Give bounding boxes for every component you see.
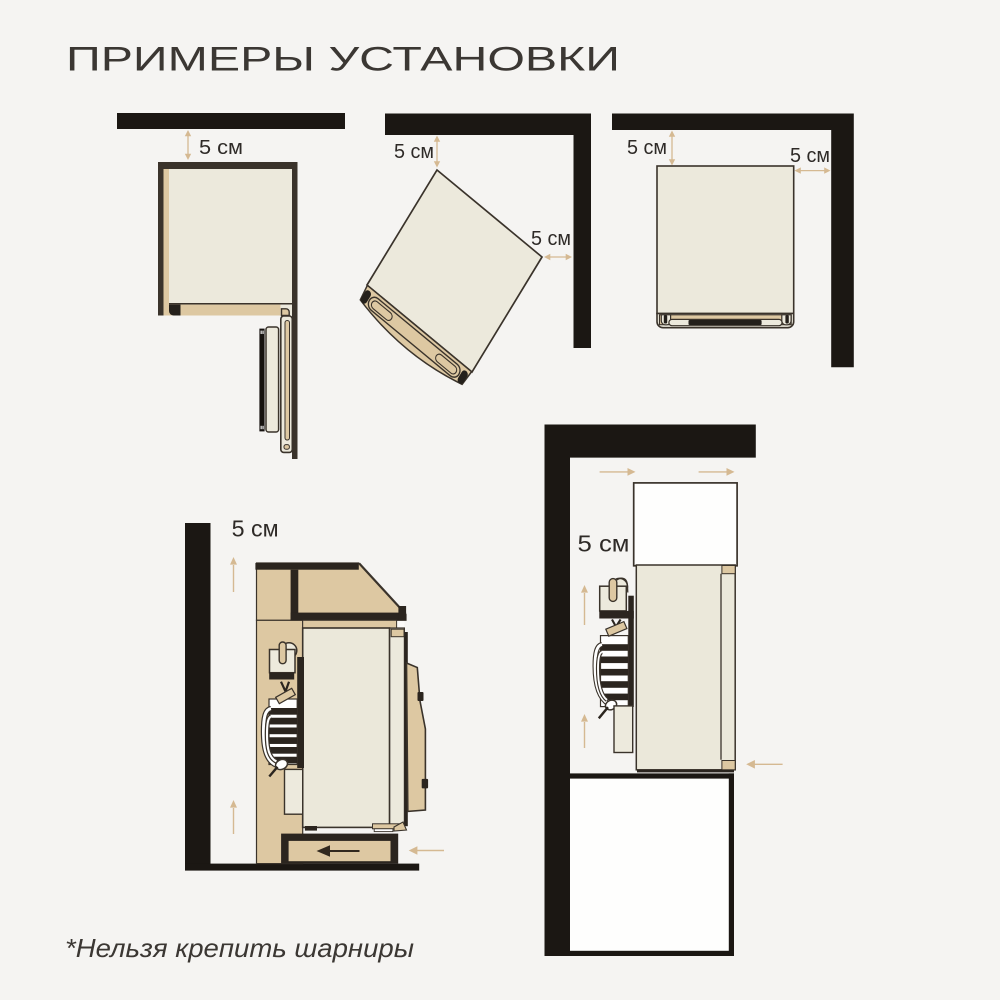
svg-text:5 см: 5 см	[790, 145, 830, 167]
svg-text:5 см: 5 см	[199, 137, 243, 159]
svg-text:5 см: 5 см	[578, 530, 630, 556]
svg-text:*Нельзя крепить шарниры: *Нельзя крепить шарниры	[65, 933, 414, 963]
svg-text:5 см: 5 см	[232, 516, 279, 542]
svg-text:5 см: 5 см	[627, 137, 667, 159]
svg-text:5 см: 5 см	[531, 228, 571, 250]
svg-text:ПРИМЕРЫ УСТАНОВКИ: ПРИМЕРЫ УСТАНОВКИ	[66, 41, 620, 79]
svg-text:5 см: 5 см	[394, 141, 434, 163]
